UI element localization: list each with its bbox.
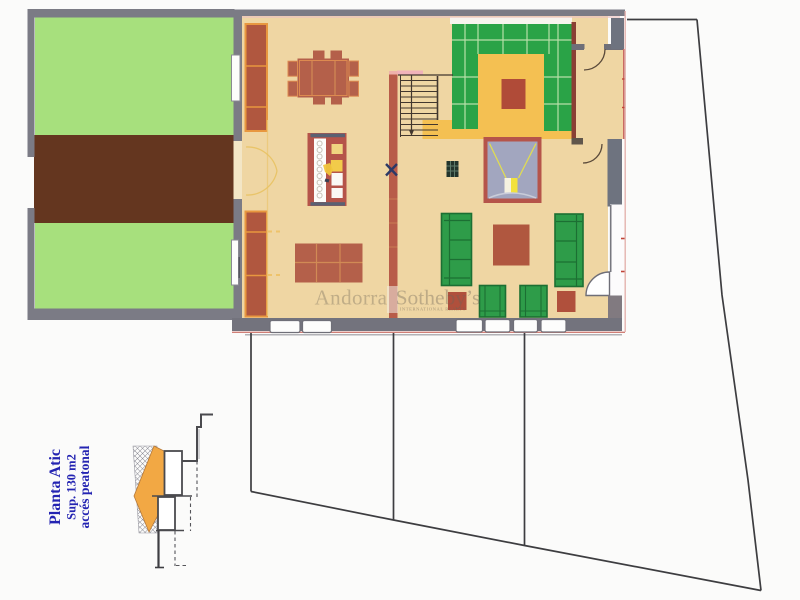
svg-text:Andorra: Andorra (315, 286, 388, 310)
svg-text:accés peatonal: accés peatonal (77, 445, 92, 528)
svg-text:INTERNATIONAL REALTY: INTERNATIONAL REALTY (400, 307, 467, 312)
svg-text:Planta Atic: Planta Atic (47, 449, 64, 525)
